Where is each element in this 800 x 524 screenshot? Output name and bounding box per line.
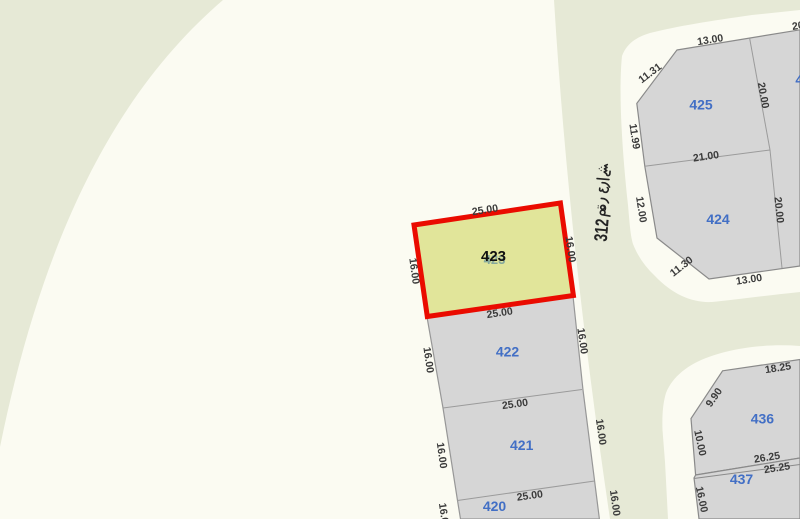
svg-text:16.00: 16.00 [436, 502, 452, 519]
svg-text:436: 436 [751, 411, 775, 427]
svg-text:420: 420 [483, 498, 507, 514]
svg-text:422: 422 [496, 344, 520, 360]
svg-text:42: 42 [795, 72, 800, 88]
svg-text:425: 425 [689, 97, 713, 113]
svg-text:423: 423 [481, 248, 506, 265]
svg-text:424: 424 [706, 211, 730, 227]
svg-text:437: 437 [730, 471, 754, 487]
svg-text:312: 312 [591, 218, 613, 242]
svg-text:421: 421 [510, 437, 534, 453]
